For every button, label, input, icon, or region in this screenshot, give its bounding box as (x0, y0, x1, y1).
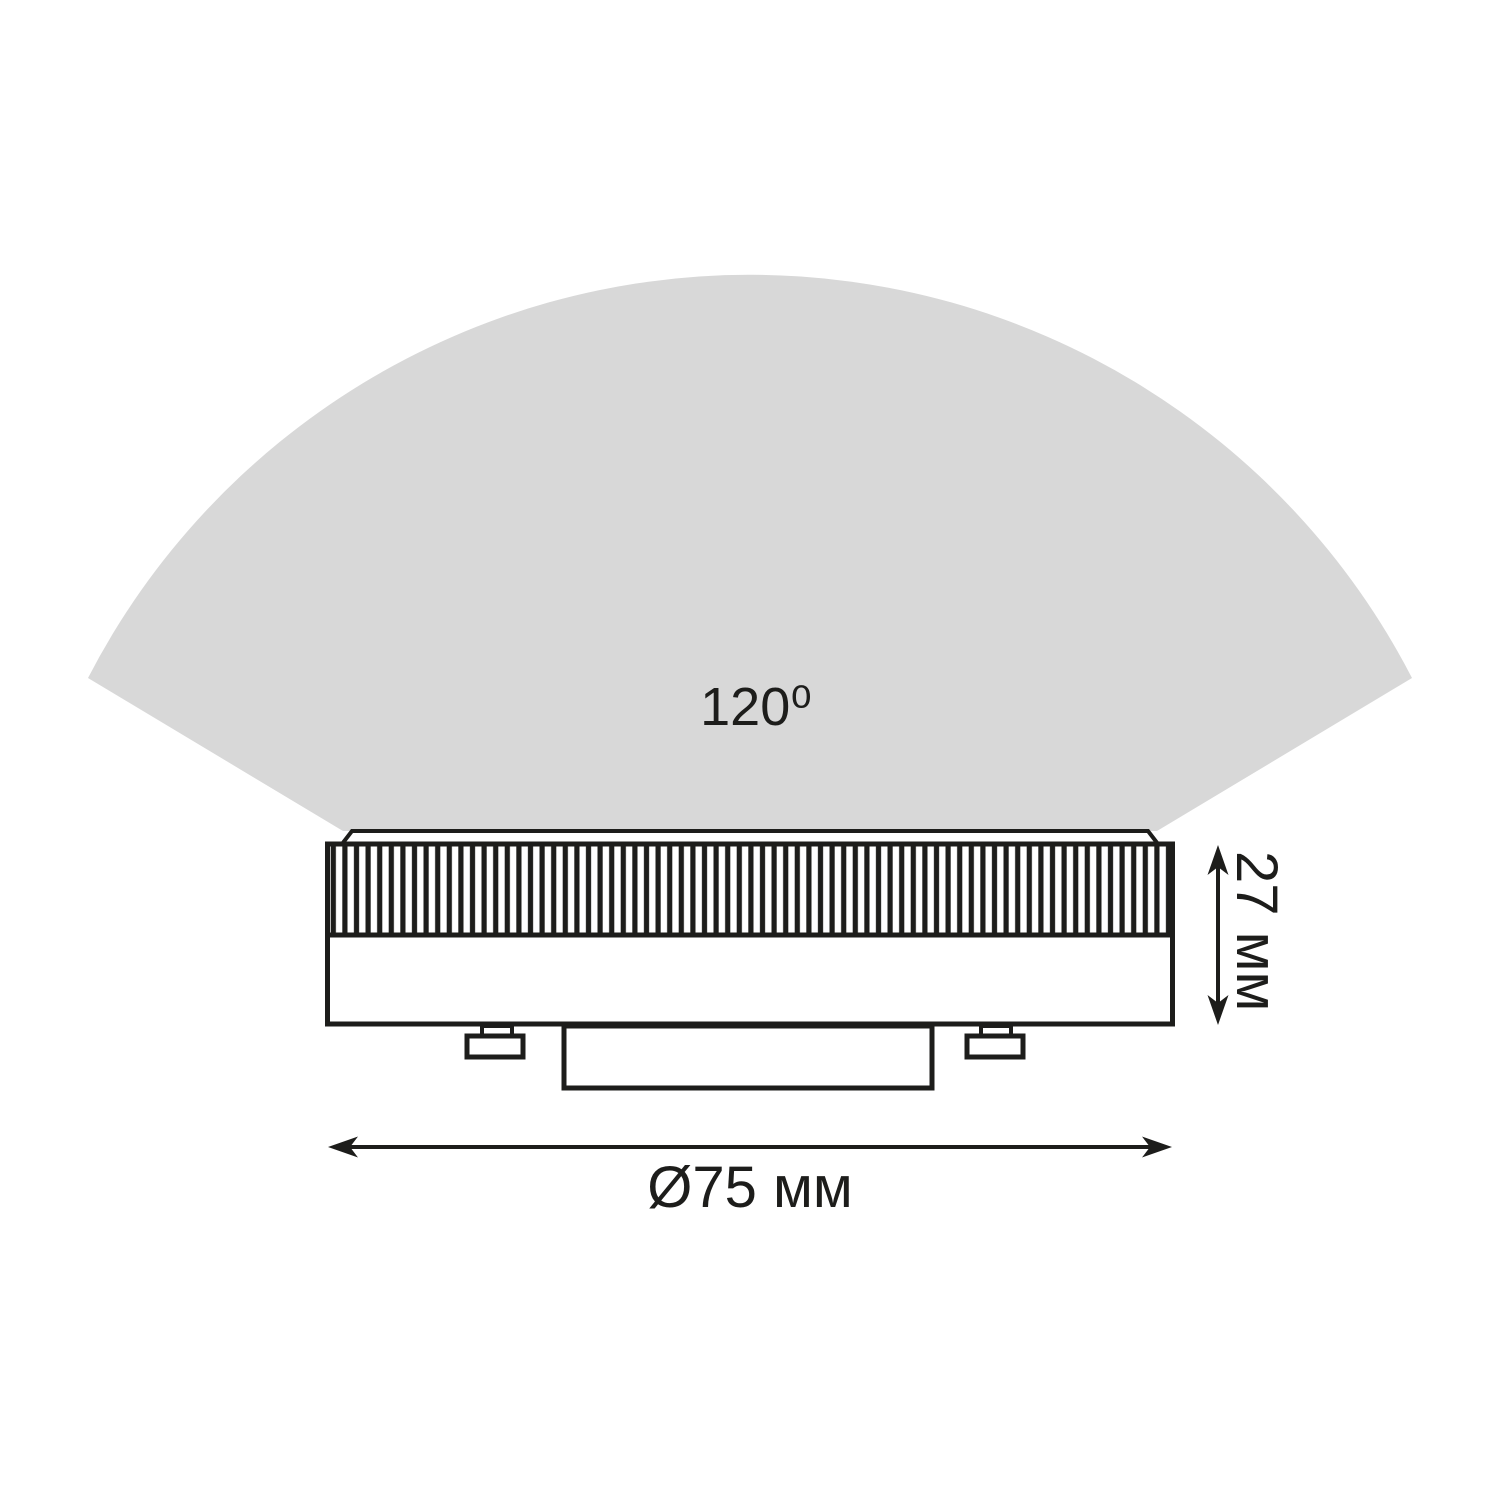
height-dimension: 27 мм (1208, 845, 1290, 1025)
lamp-pin-left (467, 1026, 523, 1057)
beam-cone (88, 275, 1412, 831)
diameter-dimension: Ø75 мм (328, 1137, 1172, 1221)
lamp-dimensions-diagram: 120⁰ 27 мм Ø75 (0, 0, 1500, 1500)
diagram-canvas: 120⁰ 27 мм Ø75 (0, 0, 1500, 1500)
height-label: 27 мм (1224, 851, 1289, 1011)
beam-angle-label: 120⁰ (700, 677, 812, 737)
lamp-base-plate (564, 1026, 932, 1088)
lamp-pin-right-foot (967, 1036, 1023, 1057)
lamp-ribbed-ring (328, 844, 1173, 935)
lamp-pin-left-foot (467, 1036, 523, 1057)
diameter-label: Ø75 мм (647, 1155, 853, 1220)
lamp-pin-right (967, 1026, 1023, 1057)
lamp-body (328, 935, 1173, 1024)
